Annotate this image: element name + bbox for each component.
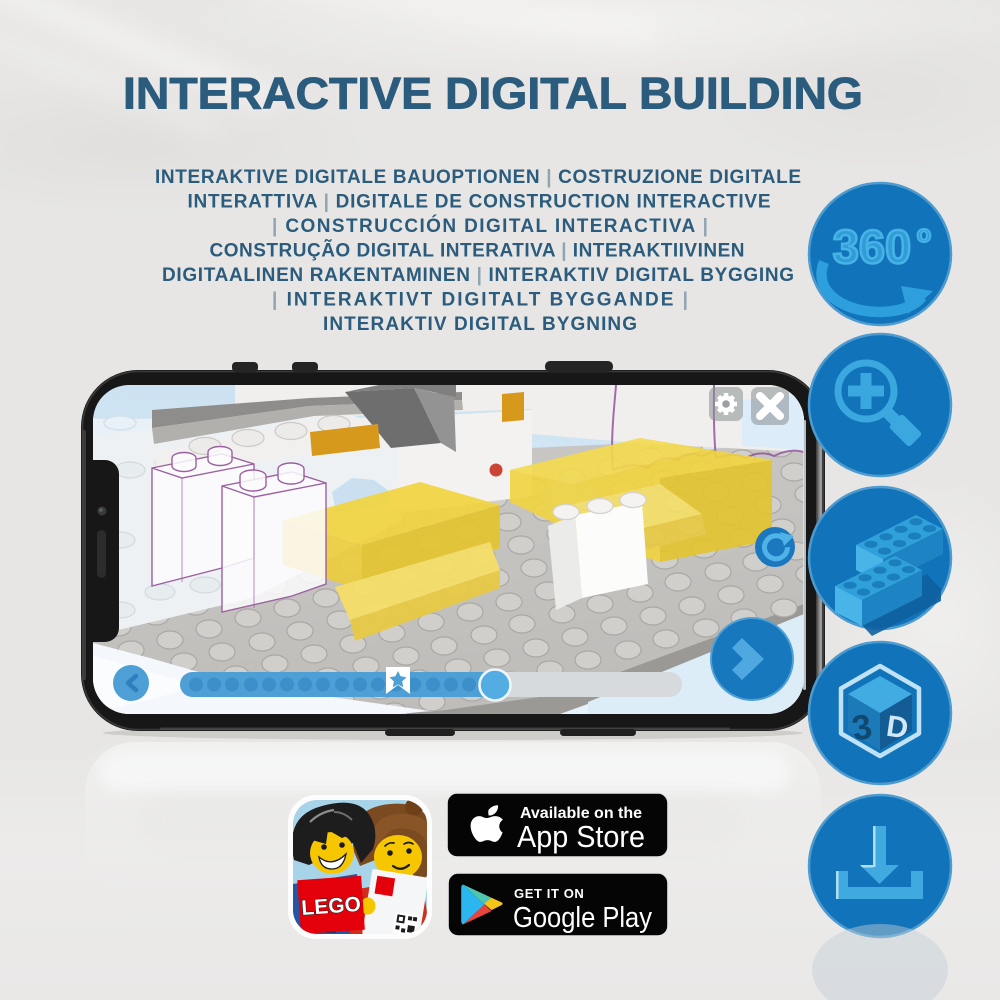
svg-text:GET IT ON: GET IT ON	[514, 886, 584, 901]
svg-text:DIGITAALINEN RAKENTAMINEN | IN: DIGITAALINEN RAKENTAMINEN | INTERAKTIV D…	[162, 265, 794, 286]
svg-text:| CONSTRUCCIÓN DIGITAL INTERAC: | CONSTRUCCIÓN DIGITAL INTERACTIVA |	[272, 215, 708, 237]
svg-text:o: o	[917, 221, 932, 248]
svg-text:360: 360	[833, 220, 911, 273]
svg-text:LEGO: LEGO	[301, 893, 362, 920]
svg-text:Google Play: Google Play	[513, 902, 652, 934]
svg-text:INTERATTIVA | DIGITALE DE CONS: INTERATTIVA | DIGITALE DE CONSTRUCTION I…	[188, 192, 771, 213]
svg-text:INTERAKTIVE DIGITALE BAUOPTION: INTERAKTIVE DIGITALE BAUOPTIONEN | COSTR…	[155, 167, 801, 188]
svg-text:D: D	[884, 710, 910, 746]
svg-text:INTERAKTIV DIGITAL BYGNING: INTERAKTIV DIGITAL BYGNING	[323, 314, 637, 335]
svg-text:App Store: App Store	[517, 819, 645, 854]
svg-text:INTERACTIVE DIGITAL BUILDING: INTERACTIVE DIGITAL BUILDING	[123, 70, 863, 119]
svg-text:CONSTRUÇÃO DIGITAL INTERATIVA: CONSTRUÇÃO DIGITAL INTERATIVA | INTERAKT…	[210, 240, 745, 262]
